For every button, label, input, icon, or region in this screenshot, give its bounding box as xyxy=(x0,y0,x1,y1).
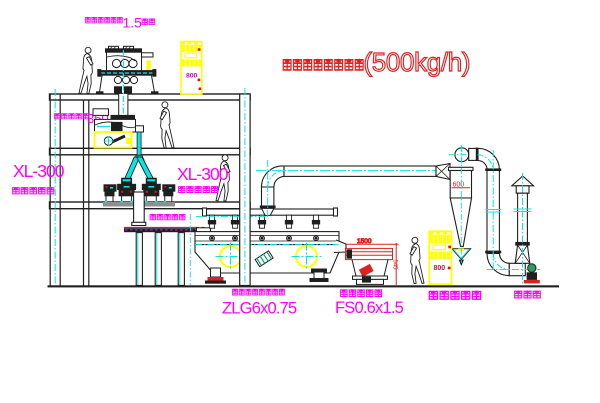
svg-text:ZLG6x0.75: ZLG6x0.75 xyxy=(222,300,297,318)
svg-text:XL-300: XL-300 xyxy=(13,161,65,181)
svg-text:(500kg/h): (500kg/h) xyxy=(364,47,471,77)
svg-text:545: 545 xyxy=(392,260,398,271)
svg-text:1.5: 1.5 xyxy=(123,15,143,31)
svg-text:FS0.6x1.5: FS0.6x1.5 xyxy=(335,299,404,317)
svg-text:800: 800 xyxy=(186,73,198,80)
svg-text:XL-300: XL-300 xyxy=(177,164,229,184)
svg-text:1500: 1500 xyxy=(357,238,372,245)
svg-text:800: 800 xyxy=(434,265,446,272)
